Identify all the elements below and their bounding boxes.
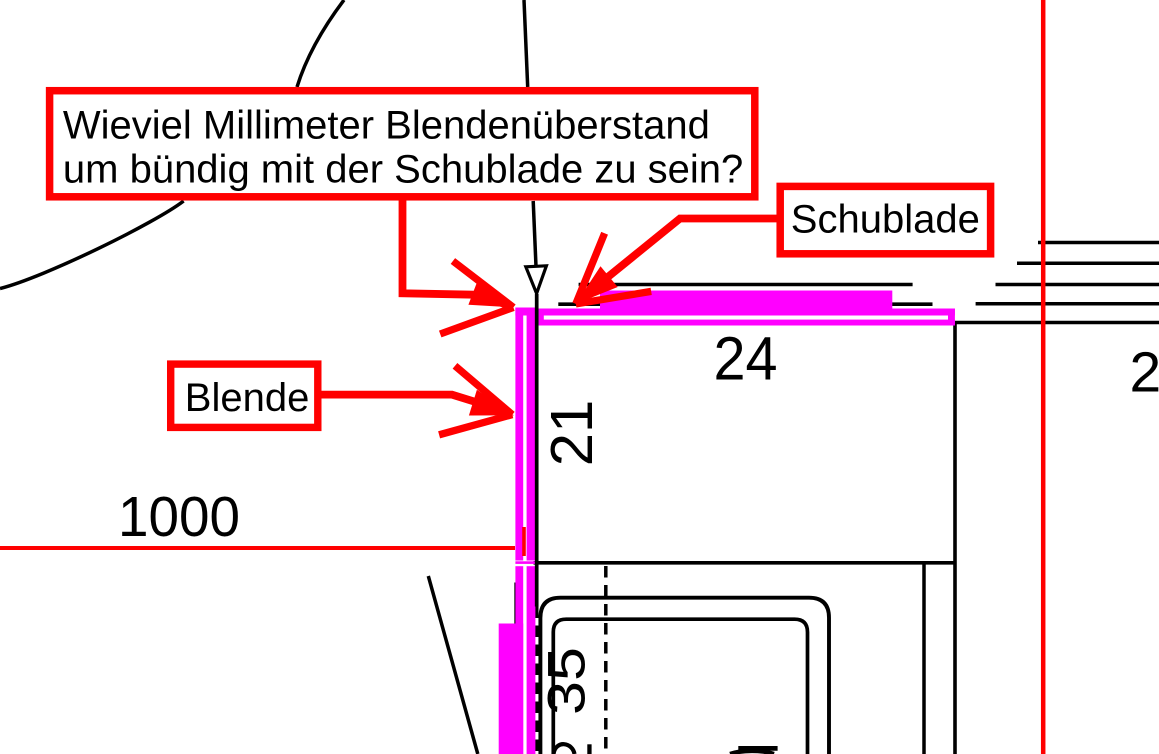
svg-text:21: 21 xyxy=(539,400,605,467)
svg-text:Schublade: Schublade xyxy=(791,198,980,242)
svg-text:24: 24 xyxy=(714,325,778,393)
svg-text:35: 35 xyxy=(538,647,597,715)
svg-text:Blende: Blende xyxy=(185,376,310,420)
svg-text:1000: 1000 xyxy=(118,485,240,549)
svg-text:24: 24 xyxy=(1130,341,1159,405)
svg-text:um bündig mit der Schublade zu: um bündig mit der Schublade zu sein? xyxy=(63,147,743,191)
svg-text:Wieviel Millimeter Blendenüber: Wieviel Millimeter Blendenüberstand xyxy=(63,103,710,147)
